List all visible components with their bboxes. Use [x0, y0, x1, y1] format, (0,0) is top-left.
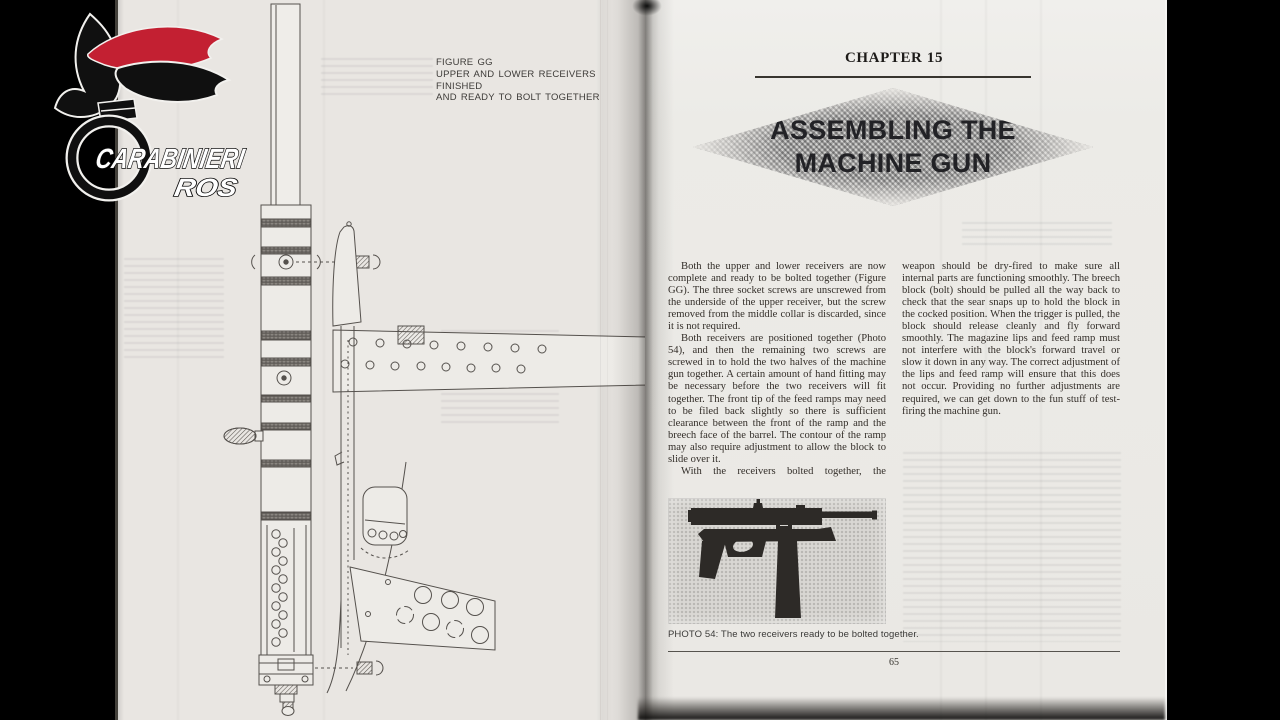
paragraph: With the receivers bolted together, the: [668, 466, 886, 478]
video-frame: FIGURE GG UPPER AND LOWER RECEIVERS FINI…: [0, 0, 1280, 720]
paragraph: Both the upper and lower receivers are n…: [668, 261, 886, 333]
bottom-screw: [315, 661, 383, 675]
body-column-1: Both the upper and lower receivers are n…: [668, 261, 886, 478]
chapter-title-line: ASSEMBLING THE: [693, 114, 1093, 147]
pistol-grip-outline: [361, 487, 409, 558]
page-edge-line: [607, 0, 608, 720]
body-text: Both the upper and lower receivers are n…: [668, 261, 1120, 478]
carabinieri-ros-logo: CARABINIERI ROS: [24, 0, 264, 220]
chapter-title-diamond: ASSEMBLING THE MACHINE GUN: [693, 88, 1093, 206]
gutter-top-shadow: [632, 0, 662, 16]
paragraph: weapon should be dry-fired to make sure …: [902, 261, 1120, 418]
bleedthrough-text: [962, 222, 1112, 250]
book-bottom-edge-shadow: [638, 697, 1165, 720]
bleedthrough-text: [903, 452, 1121, 642]
cocking-handle: [224, 428, 263, 444]
end-cap: [259, 655, 313, 716]
paragraph: Both receivers are positioned together (…: [668, 333, 886, 466]
book-page-right: CHAPTER 15 ASSEMBLING THE MACHINE GUN Bo…: [645, 0, 1167, 720]
upper-receiver-tube: [252, 205, 321, 655]
barrel-outline: [271, 4, 300, 205]
stock-plate: [350, 567, 495, 650]
chapter-rule: [755, 76, 1031, 78]
footer-rule: [668, 651, 1120, 652]
photo-caption: PHOTO 54: The two receivers ready to be …: [668, 629, 928, 640]
page-edge-line: [600, 0, 601, 720]
chapter-heading: CHAPTER 15: [668, 50, 1120, 67]
photo-54: [668, 498, 886, 624]
page-number: 65: [668, 657, 1120, 668]
lower-receiver-silhouette: [698, 524, 836, 618]
watermark-org-text: CARABINIERI: [93, 142, 248, 174]
upper-receiver-silhouette: [688, 499, 877, 525]
body-column-2: weapon should be dry-fired to make sure …: [902, 261, 1120, 478]
photo-54-content: [668, 498, 886, 624]
chapter-title-line: MACHINE GUN: [693, 147, 1093, 180]
watermark-unit-text: ROS: [172, 174, 239, 202]
